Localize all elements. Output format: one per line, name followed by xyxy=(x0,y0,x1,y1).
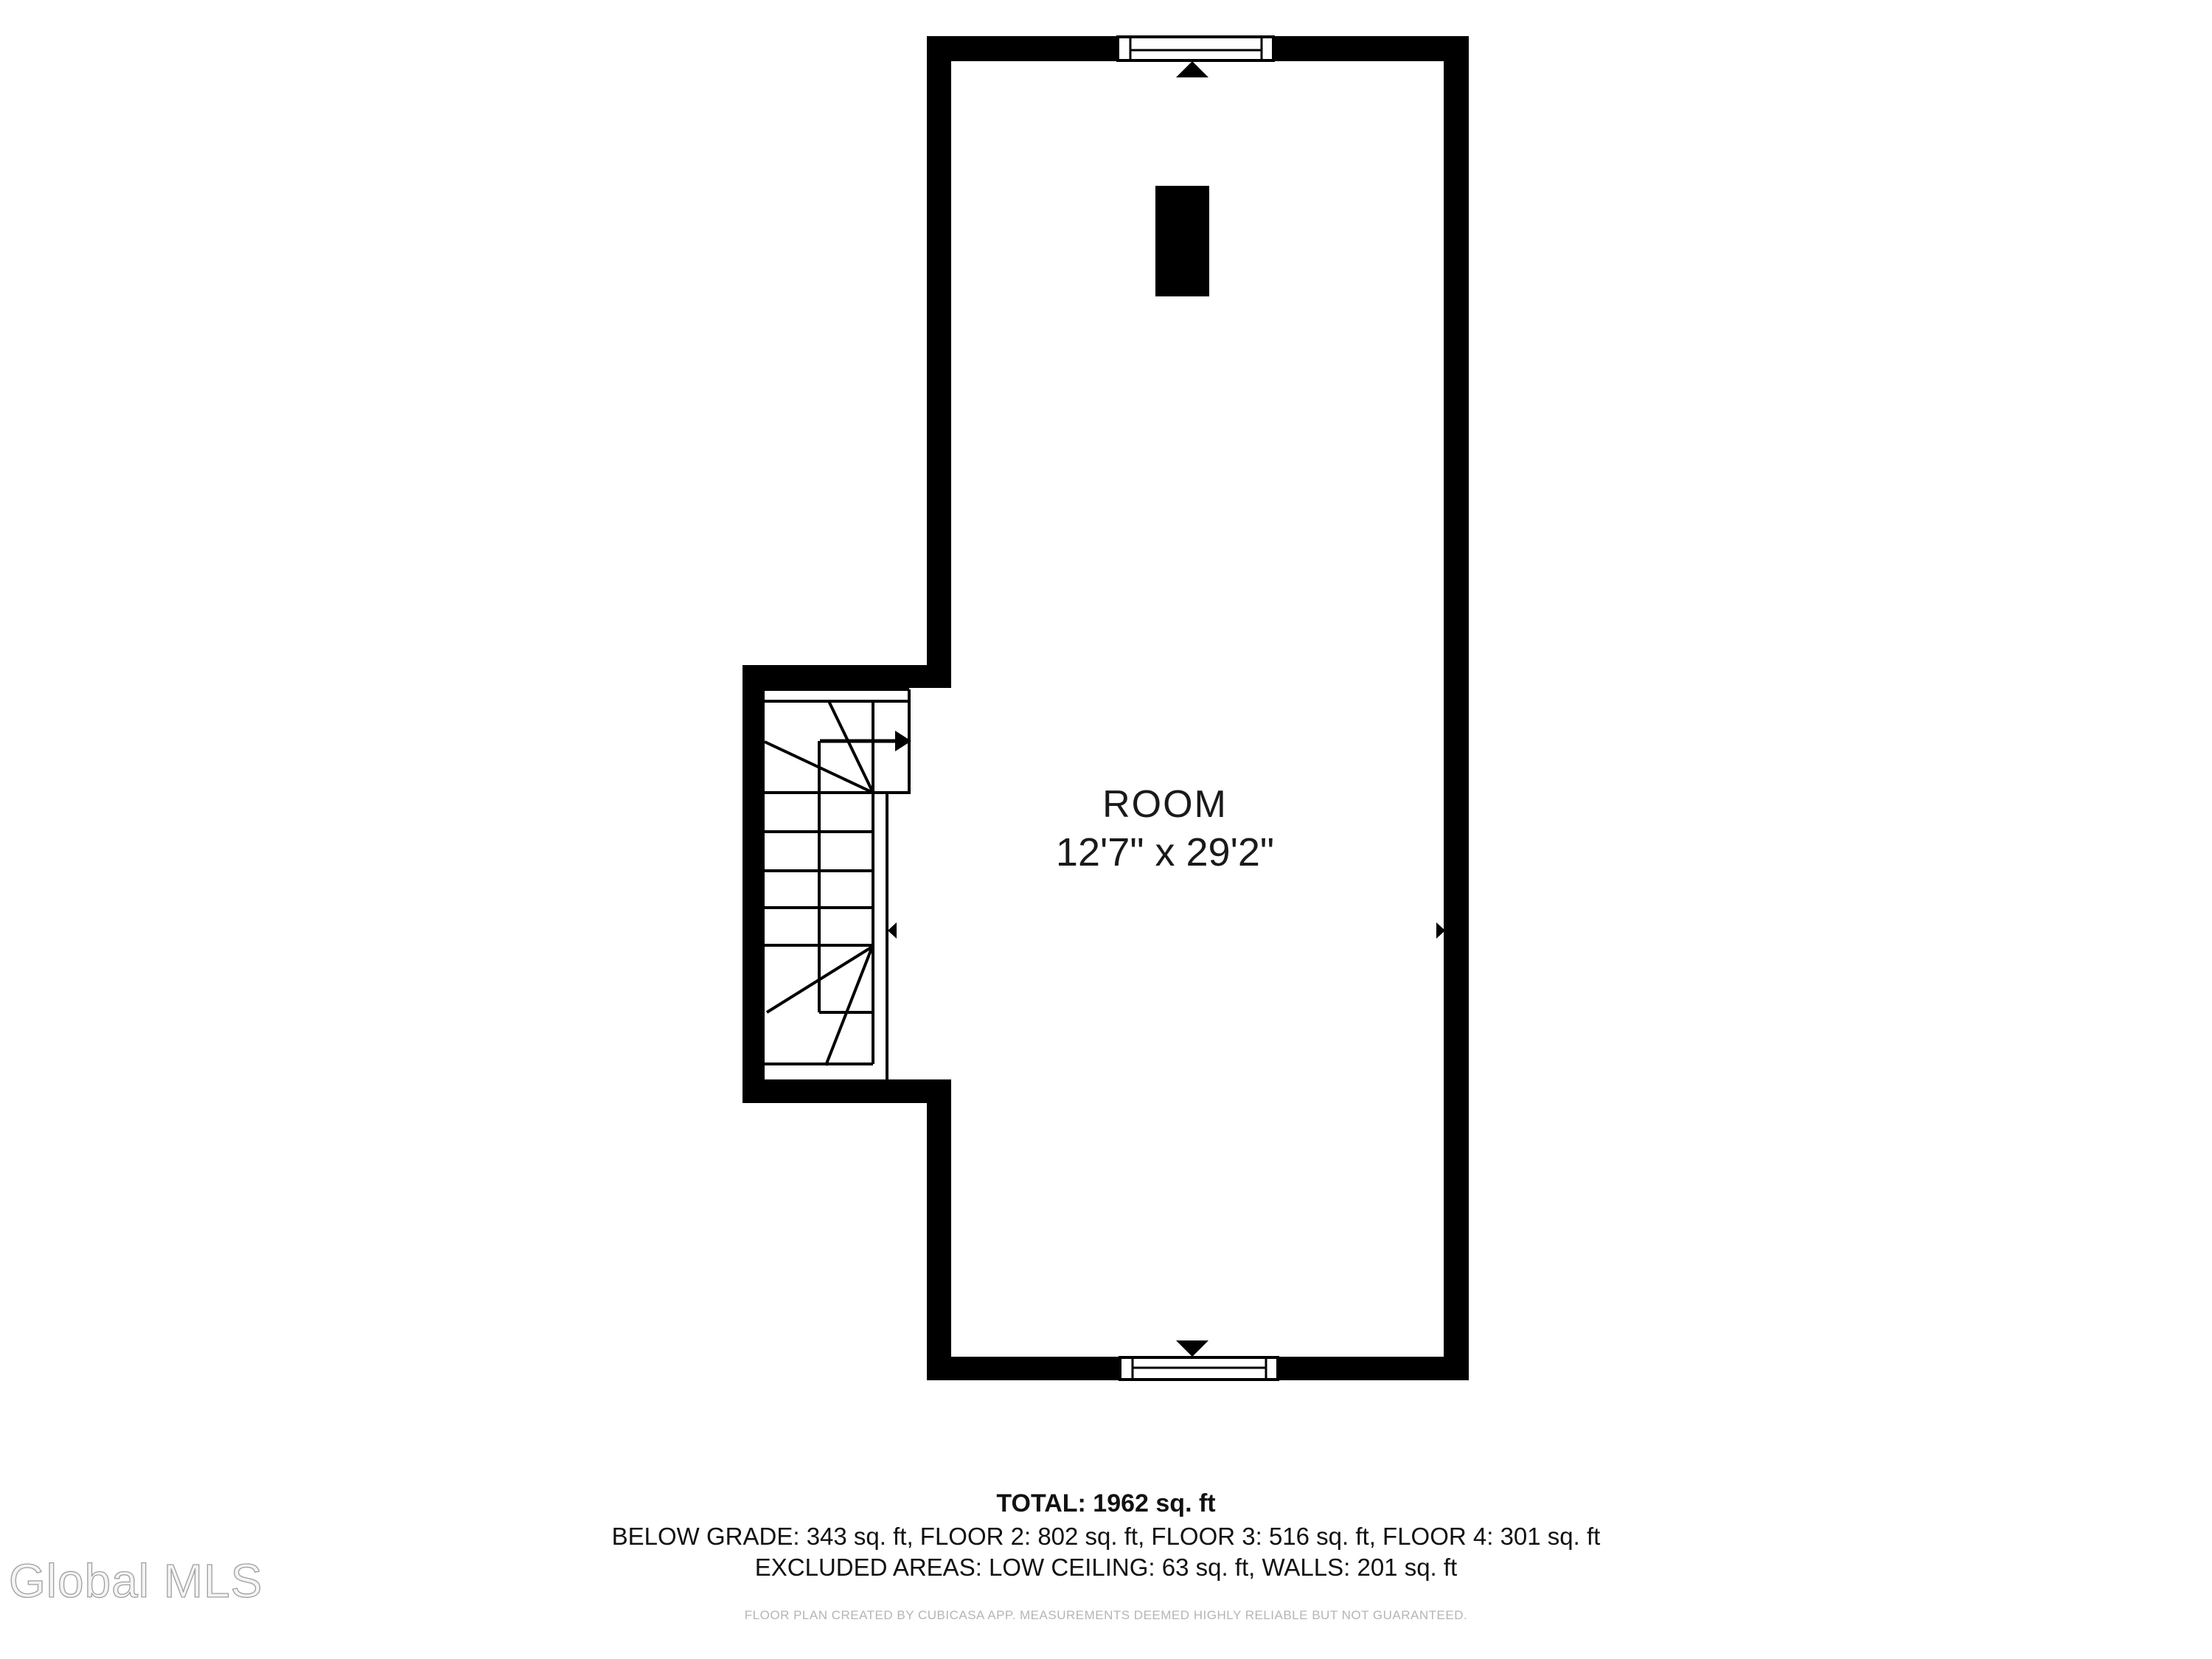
wall-marker-triangle-up xyxy=(1176,61,1208,77)
wall-segment-left-upper xyxy=(927,36,951,688)
floor-areas-text: BELOW GRADE: 343 sq. ft, FLOOR 2: 802 sq… xyxy=(612,1523,1601,1550)
stair-direction-arrow xyxy=(820,731,911,751)
chimney-block xyxy=(1155,186,1209,296)
floorplan-drawing: ROOM 12'7" x 29'2" TOTAL: 1962 sq. ft BE… xyxy=(0,0,2212,1659)
disclaimer-text: FLOOR PLAN CREATED BY CUBICASA APP. MEAS… xyxy=(745,1608,1467,1622)
wall-segment-left-lower xyxy=(927,1079,951,1380)
wall-segment-alcove-left xyxy=(742,665,765,1103)
stair-winder-line xyxy=(829,701,873,793)
excluded-areas-text: EXCLUDED AREAS: LOW CEILING: 63 sq. ft, … xyxy=(755,1554,1457,1581)
walls xyxy=(742,36,1469,1380)
wall-segment-alcove-bottom xyxy=(742,1079,951,1103)
room-name-label: ROOM xyxy=(1102,783,1228,826)
window-bottom xyxy=(1120,1357,1278,1380)
window-top xyxy=(1118,37,1273,60)
total-area-text: TOTAL: 1962 sq. ft xyxy=(996,1489,1215,1517)
floorplan-canvas: ROOM 12'7" x 29'2" TOTAL: 1962 sq. ft BE… xyxy=(0,0,2212,1659)
wall-segment-right xyxy=(1444,36,1469,1380)
staircase xyxy=(765,689,909,1079)
global-mls-watermark-logo: Global MLS xyxy=(9,1554,262,1607)
wall-marker-triangle-left xyxy=(888,922,897,939)
wall-segment-top-right xyxy=(1273,36,1469,61)
wall-segment-bottom-left xyxy=(927,1357,1120,1380)
window-frame xyxy=(1118,37,1273,60)
wall-segment-top-left xyxy=(927,36,1118,61)
stair-winder-line xyxy=(826,947,872,1065)
room-dimensions-label: 12'7" x 29'2" xyxy=(1056,830,1274,874)
wall-segment-bottom-right xyxy=(1278,1357,1469,1380)
wall-segment-alcove-top xyxy=(742,665,951,688)
wall-marker-triangle-down xyxy=(1176,1340,1208,1357)
